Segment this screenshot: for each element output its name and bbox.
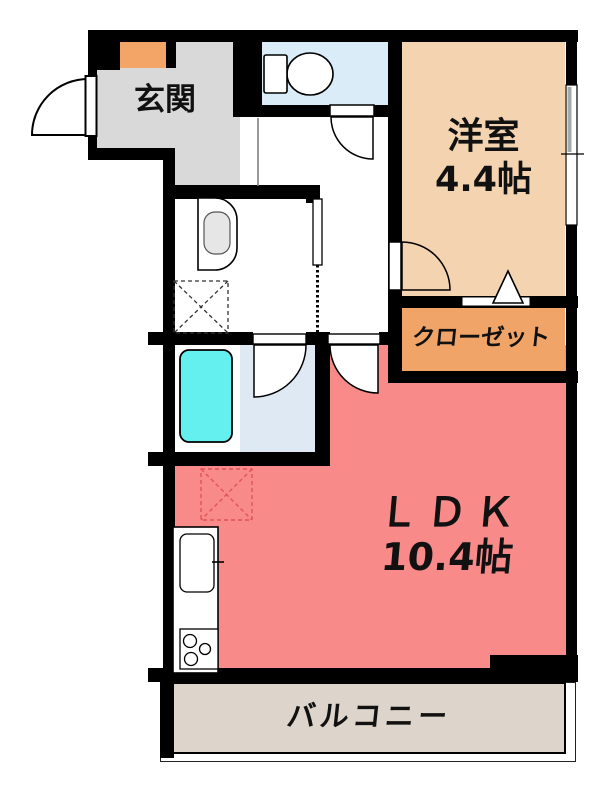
entrance-door-swing: [32, 79, 88, 135]
bathtub: [180, 350, 232, 442]
toilet-door-swing: [331, 117, 373, 159]
washroom-sliding-door: [313, 199, 322, 265]
western-room-size: 4.4帖: [402, 162, 565, 199]
toilet-door-leaf: [330, 105, 374, 116]
genkan-label: 玄関: [97, 84, 233, 117]
western-room-label: 洋室 4.4帖: [402, 118, 565, 199]
refrigerator-space: [201, 469, 252, 520]
closet-folding-door-mark: [493, 271, 523, 303]
kitchen-sink: [180, 534, 214, 592]
bathroom-door-leaf: [253, 334, 306, 344]
washing-machine-space: [174, 281, 228, 333]
washbasin-bowl: [204, 212, 230, 254]
ldk-door-swing: [330, 345, 378, 393]
entrance-door-leaf: [86, 76, 97, 136]
toilet-tank: [264, 55, 287, 93]
toilet-bowl: [287, 53, 333, 95]
bathroom-door-swing: [254, 345, 306, 397]
ldk-label: ＬＤＫ 10.4帖: [326, 492, 572, 578]
closet-label: クローゼット: [396, 326, 567, 350]
ldk-name: ＬＤＫ: [330, 492, 572, 534]
ldk-size: 10.4帖: [326, 538, 567, 578]
western-room-name: 洋室: [402, 118, 565, 156]
gas-stove: [180, 629, 218, 669]
floor-plan: 玄関 洋室 4.4帖 クローゼット ＬＤＫ 10.4帖 バルコニー: [0, 0, 605, 800]
ldk-door-leaf: [328, 334, 380, 344]
western-room-door-leaf: [389, 242, 401, 290]
balcony-label: バルコニー: [170, 701, 567, 731]
western-room-door-swing: [402, 242, 450, 290]
